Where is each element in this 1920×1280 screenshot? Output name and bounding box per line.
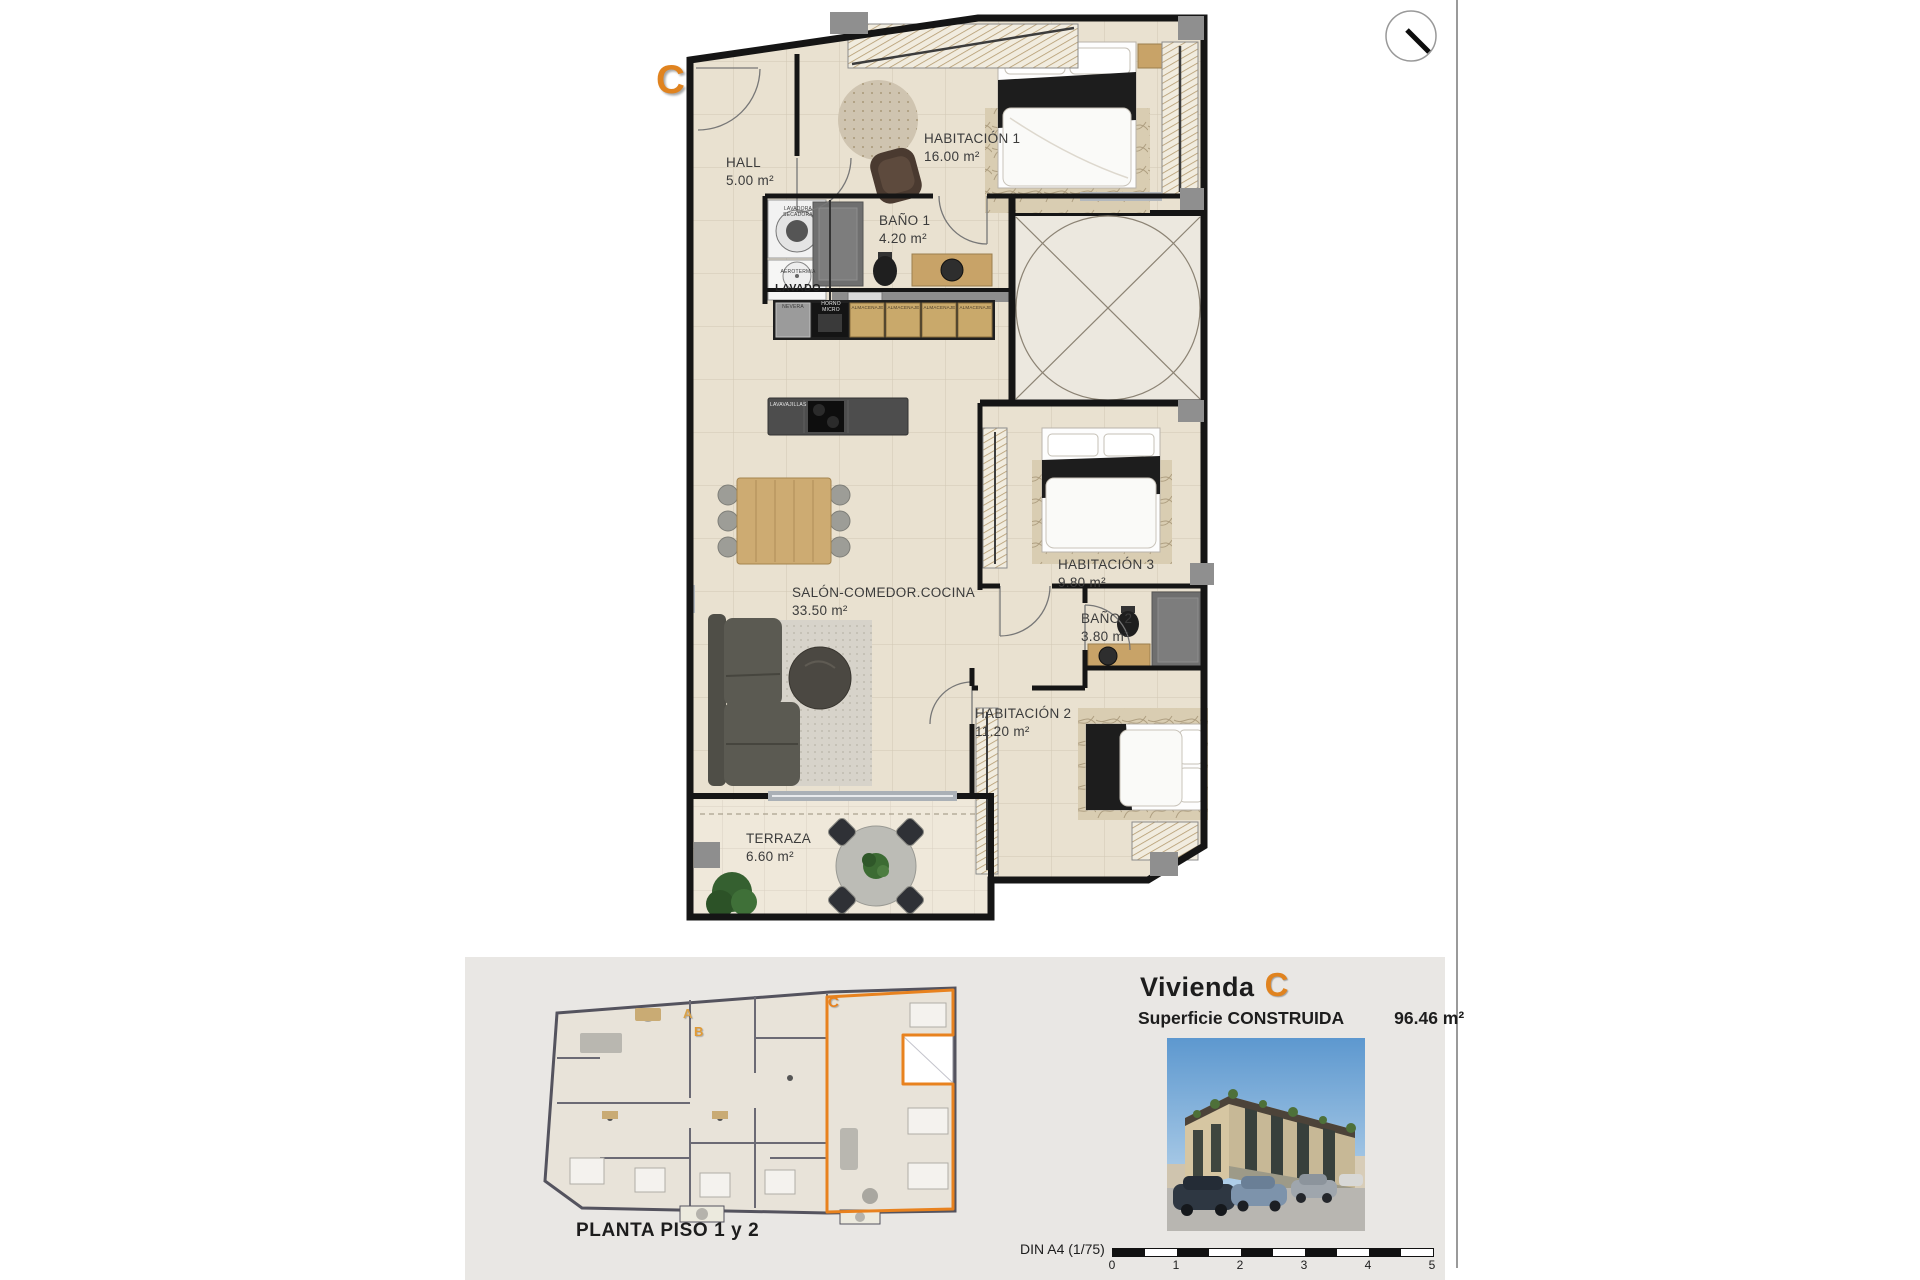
dining-table — [737, 478, 831, 564]
pillow — [1048, 434, 1098, 456]
scale-tick: 1 — [1173, 1258, 1180, 1272]
room-label-terraza: TERRAZA 6.60 m² — [746, 830, 811, 866]
unit-marker: C — [656, 58, 685, 103]
unit-title: Vivienda C — [1140, 966, 1288, 1004]
unit-title-letter: C — [1265, 966, 1289, 1004]
room-label-habitacion-1: HABITACIÓN 1 16.00 m² — [924, 130, 1020, 166]
room-label-habitacion-3: HABITACIÓN 3 9.80 m² — [1058, 556, 1154, 592]
room-area: 16.00 m² — [924, 148, 1020, 166]
sink — [941, 259, 963, 281]
scale-tick: 0 — [1109, 1258, 1116, 1272]
room-name: HABITACIÓN 3 — [1058, 556, 1154, 574]
room-name: BAÑO 1 — [879, 212, 930, 230]
scale-tick: 2 — [1237, 1258, 1244, 1272]
almacenaje-label: ALMACENAJE — [923, 305, 956, 311]
room-area: 3.80 m² — [1081, 628, 1132, 646]
room-name: HABITACIÓN 1 — [924, 130, 1020, 148]
plan-sheet: C HALL 5.00 m² HABITACIÓN 1 16.00 m² BAÑ… — [0, 0, 1920, 1280]
room-name: SALÓN-COMEDOR.COCINA — [792, 584, 975, 602]
car-white — [1339, 1174, 1363, 1186]
bedroom-1 — [838, 24, 1198, 213]
building-photo — [1167, 1038, 1365, 1231]
room-name: HALL — [726, 154, 774, 172]
scale-bar — [1112, 1248, 1434, 1257]
overview-letter-a: A — [683, 1006, 692, 1021]
patio-lightwell — [1012, 213, 1204, 403]
room-name: HABITACIÓN 2 — [975, 705, 1071, 723]
horno-micro-label: HORNO MICRO — [813, 301, 849, 313]
kitchen-sink — [848, 292, 882, 301]
toilet — [873, 256, 897, 286]
overview-letter-b: B — [694, 1024, 703, 1039]
dining-area — [718, 478, 850, 564]
overview-outline — [545, 988, 955, 1213]
scale-label: DIN A4 (1/75) — [1020, 1241, 1105, 1257]
secadora-label: SECADORA — [770, 212, 826, 218]
room-area: 5.00 m² — [726, 172, 774, 190]
coffee-table — [789, 647, 851, 709]
room-label-salon: SALÓN-COMEDOR.COCINA 33.50 m² — [792, 584, 975, 620]
bed-duvet — [1003, 108, 1131, 186]
almacenaje-label: ALMACENAJE — [959, 305, 992, 311]
room-name: BAÑO 2 — [1081, 610, 1132, 628]
sofa-seat — [724, 618, 782, 706]
terrace — [692, 800, 989, 918]
round-rug — [838, 80, 918, 160]
pillow — [1070, 48, 1130, 74]
almacenaje-label: ALMACENAJE — [851, 305, 884, 311]
pillow — [1180, 768, 1202, 802]
scale-ticks: 0 1 2 3 4 5 — [1112, 1258, 1432, 1272]
induction-hob — [808, 401, 844, 432]
bed-duvet — [1046, 478, 1156, 548]
room-area: 33.50 m² — [792, 602, 975, 620]
surface-label: Superficie CONSTRUIDA — [1138, 1008, 1344, 1029]
pillow — [1180, 730, 1202, 764]
terrace-pillar — [694, 842, 720, 868]
vanity — [1088, 644, 1150, 668]
north-arrow-icon — [1383, 8, 1439, 64]
unit-title-prefix: Vivienda — [1140, 972, 1255, 1003]
room-label-bano-1: BAÑO 1 4.20 m² — [879, 212, 930, 248]
room-area: 4.20 m² — [879, 230, 930, 248]
pillow — [1104, 434, 1154, 456]
bed-duvet — [1120, 730, 1182, 806]
sink — [1099, 647, 1117, 665]
room-area: 6.60 m² — [746, 848, 811, 866]
micro-label: MICRO — [813, 307, 849, 313]
room-label-habitacion-2: HABITACIÓN 2 11.20 m² — [975, 705, 1071, 741]
overview-mini-plan — [540, 978, 970, 1228]
surface-row: Superficie CONSTRUIDA 96.46 m² — [1138, 1008, 1464, 1029]
lavado-label: LAVADO — [768, 282, 828, 294]
room-label-bano-2: BAÑO 2 3.80 m² — [1081, 610, 1132, 646]
almacenaje-label: ALMACENAJE — [887, 305, 920, 311]
scale-tick: 4 — [1365, 1258, 1372, 1272]
washer-label: LAVADORA SECADORA — [770, 206, 826, 218]
overview-letter-c: C — [828, 994, 839, 1011]
nevera-label: NEVERA — [776, 304, 810, 310]
room-label-hall: HALL 5.00 m² — [726, 154, 774, 190]
room-area: 9.80 m² — [1058, 574, 1154, 592]
aerotermia-label: AEROTERMIA — [770, 269, 826, 275]
scale-tick: 5 — [1429, 1258, 1436, 1272]
plan-caption: PLANTA PISO 1 y 2 — [576, 1220, 759, 1242]
room-area: 11.20 m² — [975, 723, 1071, 741]
sofa-back — [708, 614, 726, 786]
nightstand — [1138, 44, 1164, 68]
lavavajillas-label: LAVAVAJILLAS — [770, 402, 812, 408]
room-name: TERRAZA — [746, 830, 811, 848]
scale-tick: 3 — [1301, 1258, 1308, 1272]
sheet-right-border — [1456, 0, 1458, 1268]
surface-value: 96.46 m² — [1394, 1008, 1464, 1029]
